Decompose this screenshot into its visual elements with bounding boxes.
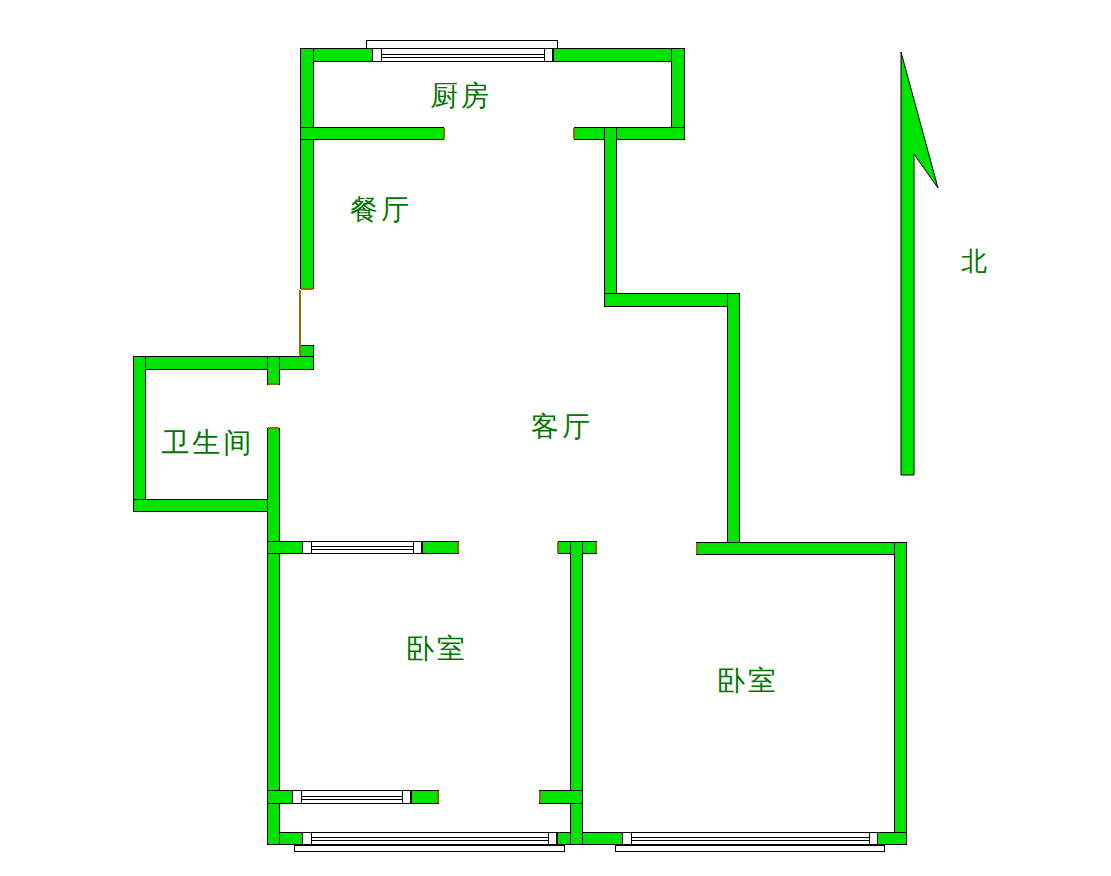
wall-joint [134, 357, 145, 369]
wall-kitchen-south-left [301, 128, 444, 140]
wall-joint [728, 294, 739, 306]
wall-west-lower [268, 429, 280, 845]
wall-bath-west [134, 357, 146, 512]
wall-joint [268, 833, 279, 844]
wall-bath-south [134, 500, 280, 512]
wall-joint [268, 500, 279, 511]
wall-bedroom-west-north-b [423, 542, 459, 554]
wall-joint [268, 542, 279, 553]
wall-east-outer [895, 543, 907, 845]
room-label-kitchen: 厨房 [430, 79, 492, 112]
room-label-bedroom-east: 卧室 [717, 664, 779, 697]
wall-outer-top-right [554, 49, 685, 62]
north-arrow-icon [901, 52, 938, 475]
wall-kitchen-south-right [575, 128, 685, 140]
window-bedroom-west-north [303, 542, 422, 554]
sill-kitchen-north [367, 41, 558, 49]
wall-joint [301, 49, 313, 61]
sill-south-west [295, 846, 565, 852]
wall-joint [605, 294, 616, 306]
floor-plan: 厨房餐厅卫生间客厅卧室卧室北 [0, 0, 1111, 876]
wall-joint [301, 128, 313, 139]
wall-west-upper [301, 49, 314, 289]
wall-joint [571, 542, 582, 553]
wall-joint [268, 791, 279, 803]
wall-living-east-lower [728, 294, 740, 555]
window-south-east [623, 833, 878, 845]
room-label-bedroom-west: 卧室 [406, 632, 468, 665]
north-label: 北 [962, 246, 991, 276]
wall-joint [268, 357, 279, 369]
room-label-bathroom: 卫生间 [162, 426, 255, 459]
wall-joint [301, 357, 313, 369]
wall-joint [728, 543, 739, 554]
wall-south-mid [558, 833, 623, 845]
floor-plan-page: 厨房餐厅卫生间客厅卧室卧室北 [0, 0, 1111, 876]
wall-joint [895, 543, 906, 554]
room-label-living: 客厅 [531, 410, 593, 443]
room-label-dining: 餐厅 [350, 193, 412, 226]
wall-joint [672, 128, 684, 139]
wall-living-east-jog [605, 294, 740, 307]
wall-bath-north [134, 357, 314, 370]
wall-joint [672, 49, 684, 61]
wall-joint [605, 128, 616, 139]
window-south-west [303, 833, 557, 845]
wall-kitchen-east [672, 49, 685, 140]
wall-bedroom-west-south-b [412, 791, 439, 804]
wall-joint [895, 833, 906, 844]
wall-joint [571, 833, 582, 844]
wall-joint [571, 791, 582, 803]
wall-living-east-upper [605, 128, 617, 307]
wall-joint [134, 500, 145, 511]
sill-south-east [616, 846, 885, 852]
